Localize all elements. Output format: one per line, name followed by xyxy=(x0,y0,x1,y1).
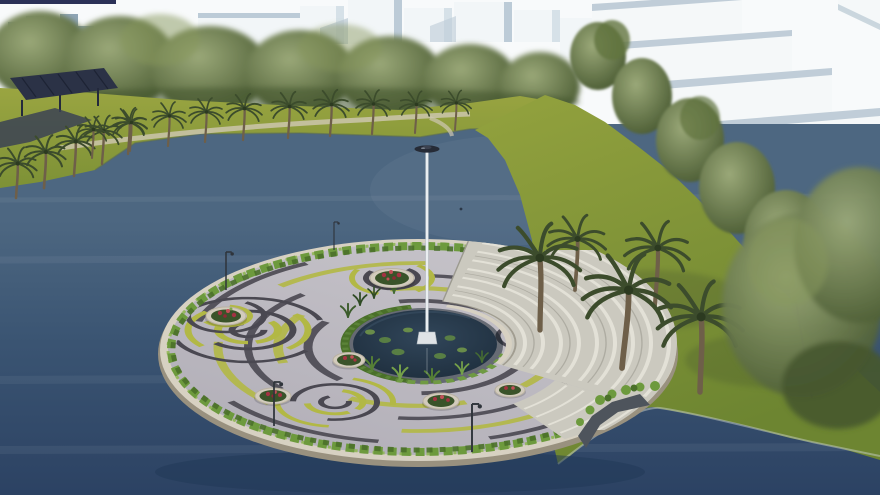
render-canvas xyxy=(0,0,880,495)
flower-planter xyxy=(422,393,460,411)
distant-marker xyxy=(460,208,463,211)
top-edge-bar xyxy=(0,0,116,4)
flower-planter xyxy=(332,353,366,370)
flower-planter xyxy=(369,269,415,290)
architectural-rendering: 3D architectural rendering of a circular… xyxy=(0,0,880,495)
flower-planter xyxy=(494,383,526,399)
flower-planter xyxy=(254,388,292,406)
flagpole-base xyxy=(417,332,437,344)
flower-planter xyxy=(205,307,247,327)
